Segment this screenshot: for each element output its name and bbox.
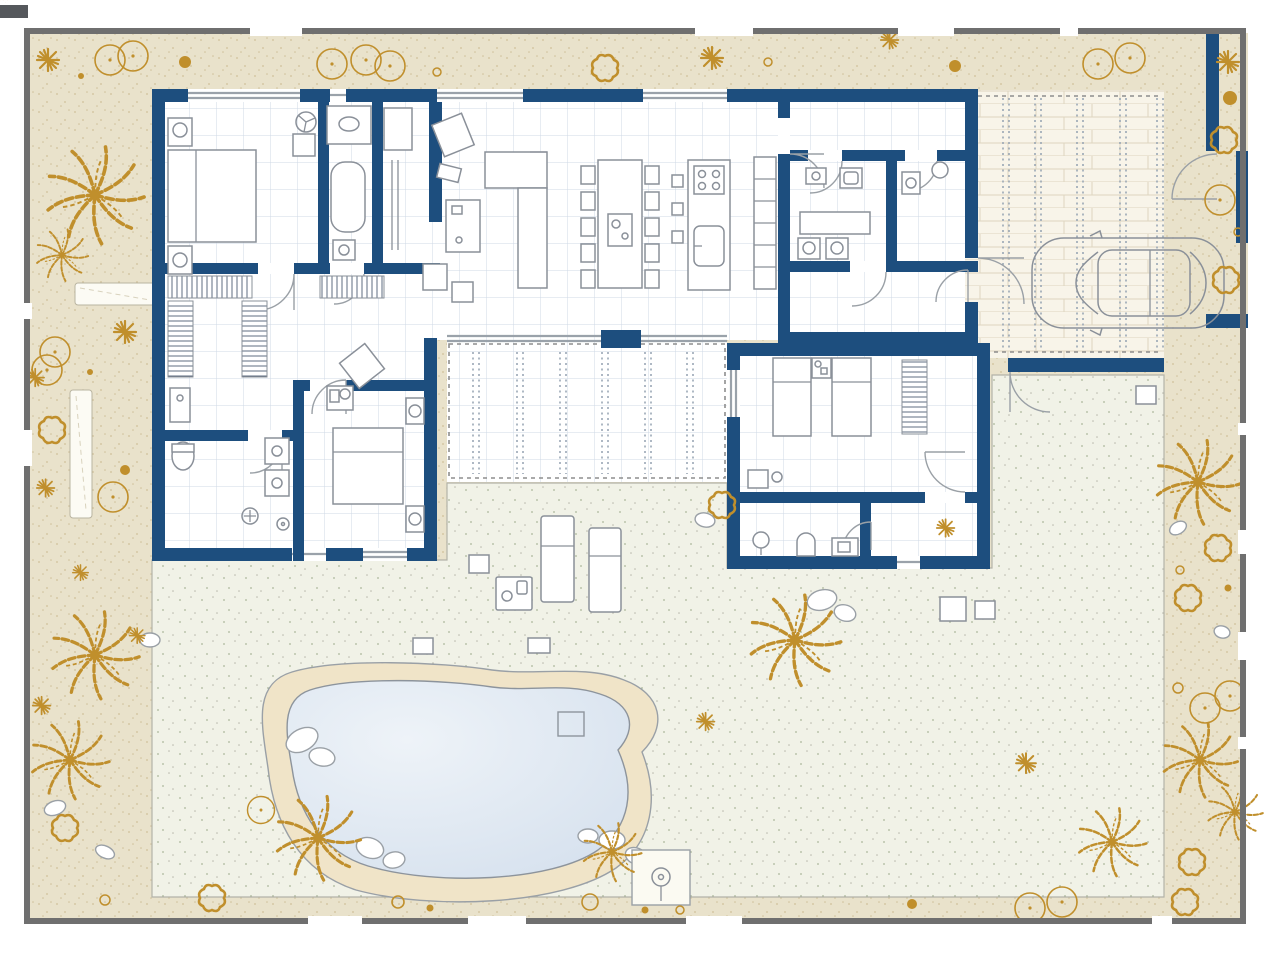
coffee-table bbox=[446, 200, 480, 252]
washing-machine bbox=[798, 238, 820, 259]
bar-stool bbox=[672, 203, 683, 215]
outdoor-shower bbox=[632, 850, 690, 905]
paver bbox=[1136, 386, 1156, 404]
toilet bbox=[902, 172, 920, 194]
toilet bbox=[797, 533, 815, 556]
twin-bed bbox=[773, 358, 811, 436]
wardrobe bbox=[168, 301, 193, 377]
covered-terrace bbox=[447, 340, 727, 482]
paver bbox=[469, 555, 489, 573]
wardrobe bbox=[168, 276, 252, 298]
vanity bbox=[327, 106, 371, 144]
washbasin bbox=[932, 162, 948, 178]
paver bbox=[940, 597, 966, 621]
pouf bbox=[423, 264, 447, 290]
cabinet bbox=[384, 108, 412, 150]
paver bbox=[975, 601, 995, 619]
wardrobe bbox=[242, 301, 267, 377]
washbasin bbox=[753, 532, 769, 548]
bar-stool bbox=[672, 175, 683, 187]
double-bed bbox=[168, 150, 256, 242]
wardrobe bbox=[320, 276, 384, 298]
sun-lounger bbox=[589, 528, 621, 612]
wardrobe bbox=[902, 360, 927, 434]
bathtub bbox=[331, 162, 365, 232]
twin-bed bbox=[832, 358, 871, 436]
sofa-chaise bbox=[518, 188, 547, 288]
paver bbox=[413, 638, 433, 654]
floor-plan-page bbox=[0, 0, 1280, 960]
window bbox=[188, 89, 727, 102]
brick-driveway bbox=[965, 90, 1164, 358]
washbasin bbox=[265, 470, 289, 496]
nightstand bbox=[168, 118, 192, 146]
fence-corner-post bbox=[0, 5, 28, 18]
paver bbox=[528, 638, 550, 653]
toilet bbox=[333, 240, 355, 260]
double-bed bbox=[333, 428, 403, 504]
kitchen bbox=[672, 157, 776, 290]
site-plan bbox=[0, 0, 1280, 960]
sun-lounger bbox=[541, 516, 574, 602]
nightstand bbox=[168, 246, 192, 274]
shower bbox=[832, 538, 858, 556]
bar-stool bbox=[672, 231, 683, 243]
cabinet bbox=[748, 470, 768, 488]
pool-area bbox=[262, 663, 658, 902]
garden-side-table bbox=[496, 577, 532, 610]
kidney-pool bbox=[287, 681, 629, 879]
counter bbox=[800, 212, 870, 234]
side-table bbox=[293, 134, 315, 156]
washbasin bbox=[265, 438, 289, 464]
sofa bbox=[485, 152, 547, 188]
utility-sink bbox=[806, 168, 826, 184]
desk bbox=[170, 388, 190, 422]
pouf bbox=[452, 282, 473, 302]
dryer bbox=[826, 238, 848, 259]
